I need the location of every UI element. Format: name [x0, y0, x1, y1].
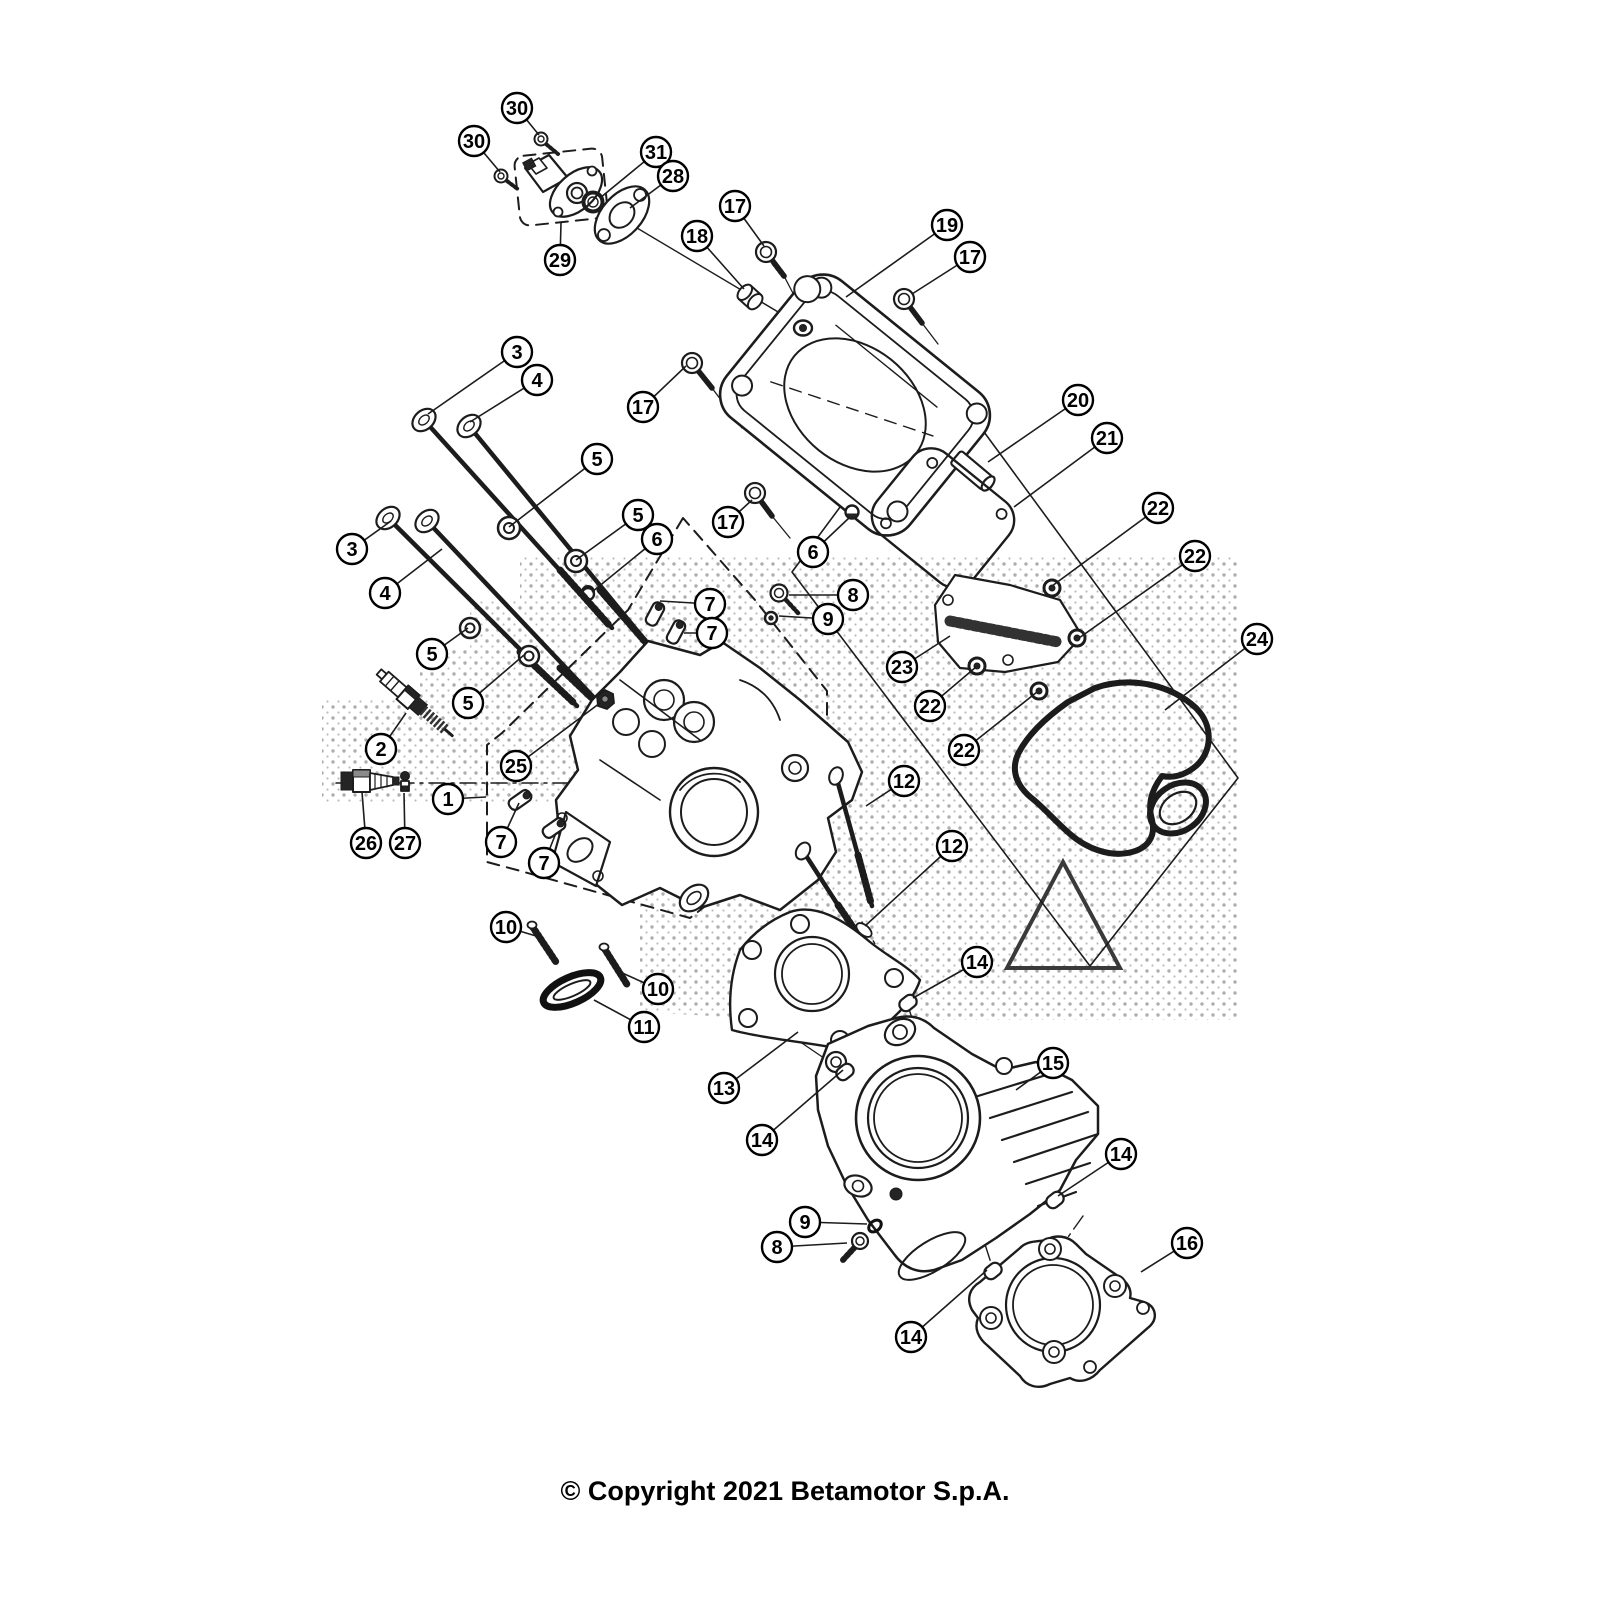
copyright-text: © Copyright 2021 Betamotor S.p.A.: [561, 1476, 1010, 1506]
callout-7: 7: [529, 833, 559, 878]
callout-number: 4: [531, 370, 543, 392]
tensioner-assembly-drawing: [514, 148, 611, 227]
exhaust-stud-drawing-1: [528, 922, 557, 963]
callout-number: 4: [379, 583, 391, 605]
callout-number: 25: [505, 756, 527, 778]
callout-4: 4: [470, 365, 552, 422]
callout-18: 18: [682, 221, 744, 289]
callout-number: 12: [893, 771, 915, 793]
callout-20: 20: [988, 385, 1093, 462]
callout-number: 14: [1110, 1144, 1133, 1166]
callout-number: 7: [704, 594, 715, 616]
callout-28: 28: [630, 161, 688, 208]
callout-number: 9: [822, 609, 833, 631]
cap-drawing-upper: [846, 506, 859, 519]
callout-number: 14: [966, 952, 989, 974]
parts-diagram-page: 3030312829171819173417556172021222234557…: [0, 0, 1600, 1600]
callout-number: 7: [706, 623, 717, 645]
callout-19: 19: [846, 210, 962, 297]
callout-number: 22: [953, 740, 975, 762]
callout-number: 7: [495, 832, 506, 854]
grommet-drawing-4: [1031, 683, 1047, 699]
cover-bolt-drawing-4: [745, 483, 772, 516]
callout-number: 30: [463, 131, 485, 153]
callout-number: 8: [771, 1237, 782, 1259]
callout-number: 24: [1246, 629, 1269, 651]
callout-17: 17: [713, 500, 752, 537]
callout-number: 5: [632, 505, 643, 527]
callout-number: 22: [1147, 498, 1169, 520]
callout-4: 4: [370, 549, 442, 608]
callout-number: 5: [462, 693, 473, 715]
callout-5: 5: [509, 444, 612, 527]
callout-16: 16: [1141, 1228, 1202, 1272]
callout-number: 13: [713, 1078, 735, 1100]
seal-washer-drawing-upper: [765, 612, 777, 624]
collar-bushing-drawing: [735, 282, 766, 312]
callout-17: 17: [720, 191, 764, 246]
callout-number: 1: [442, 789, 453, 811]
callout-number: 22: [1184, 546, 1206, 568]
callout-number: 26: [355, 833, 377, 855]
callout-number: 6: [651, 529, 662, 551]
callout-17: 17: [912, 242, 985, 294]
callout-number: 29: [549, 250, 571, 272]
callout-30: 30: [502, 93, 539, 135]
callout-number: 31: [645, 142, 667, 164]
callout-3: 3: [428, 337, 532, 414]
callout-number: 20: [1067, 390, 1089, 412]
washer-drawing-3: [460, 618, 480, 638]
callout-number: 23: [891, 657, 913, 679]
callout-leader-line: [1014, 438, 1107, 507]
exploded-parts-diagram: 3030312829171819173417556172021222234557…: [0, 0, 1600, 1600]
callout-number: 10: [495, 917, 517, 939]
callout-number: 2: [375, 739, 386, 761]
callout-number: 7: [538, 853, 549, 875]
small-bolt-drawing-lower: [842, 1233, 868, 1261]
intake-seal-drawing: [538, 966, 605, 1015]
cover-bolt-drawing-3: [682, 353, 712, 388]
callout-number: 27: [394, 833, 416, 855]
callout-number: 12: [941, 836, 963, 858]
callout-number: 30: [506, 98, 528, 120]
callout-3: 3: [337, 521, 391, 564]
callout-17: 17: [628, 366, 686, 422]
callout-number: 14: [751, 1130, 774, 1152]
cover-bolt-drawing-1: [756, 242, 784, 276]
callout-number: 3: [511, 342, 522, 364]
callout-number: 17: [717, 512, 739, 534]
pin-drawing: [950, 450, 997, 493]
washer-drawing-2: [565, 550, 587, 572]
callout-leader-line: [428, 352, 517, 414]
callout-number: 14: [900, 1327, 923, 1349]
cover-bolt-drawing-2: [894, 289, 922, 323]
callout-number: 18: [686, 226, 708, 248]
callout-number: 17: [632, 397, 654, 419]
callout-number: 16: [1176, 1233, 1198, 1255]
callout-9: 9: [790, 1207, 867, 1237]
callout-number: 6: [807, 542, 818, 564]
callout-number: 5: [591, 449, 602, 471]
callout-number: 3: [346, 539, 357, 561]
grommet-drawing-2: [1069, 630, 1085, 646]
callout-number: 17: [724, 196, 746, 218]
callout-number: 9: [799, 1212, 810, 1234]
tensioner-bolt-drawing-a: [535, 133, 559, 155]
callout-number: 17: [959, 247, 981, 269]
callout-number: 28: [662, 166, 684, 188]
callout-13: 13: [709, 1032, 798, 1103]
callout-number: 19: [936, 215, 958, 237]
callout-21: 21: [1014, 423, 1122, 507]
callout-number: 8: [847, 585, 858, 607]
callout-29: 29: [545, 223, 575, 275]
callout-leader-line: [988, 400, 1078, 462]
callout-leader-line: [846, 225, 947, 297]
callout-number: 21: [1096, 428, 1118, 450]
callout-number: 5: [426, 644, 437, 666]
bleed-fitting-drawing: [401, 772, 410, 792]
base-gasket-drawing: [969, 1237, 1155, 1387]
callout-number: 11: [633, 1017, 654, 1039]
callout-number: 22: [919, 696, 941, 718]
callout-number: 10: [647, 979, 669, 1001]
callout-number: 15: [1042, 1053, 1064, 1075]
callout-7: 7: [486, 803, 519, 857]
callout-30: 30: [459, 126, 500, 172]
